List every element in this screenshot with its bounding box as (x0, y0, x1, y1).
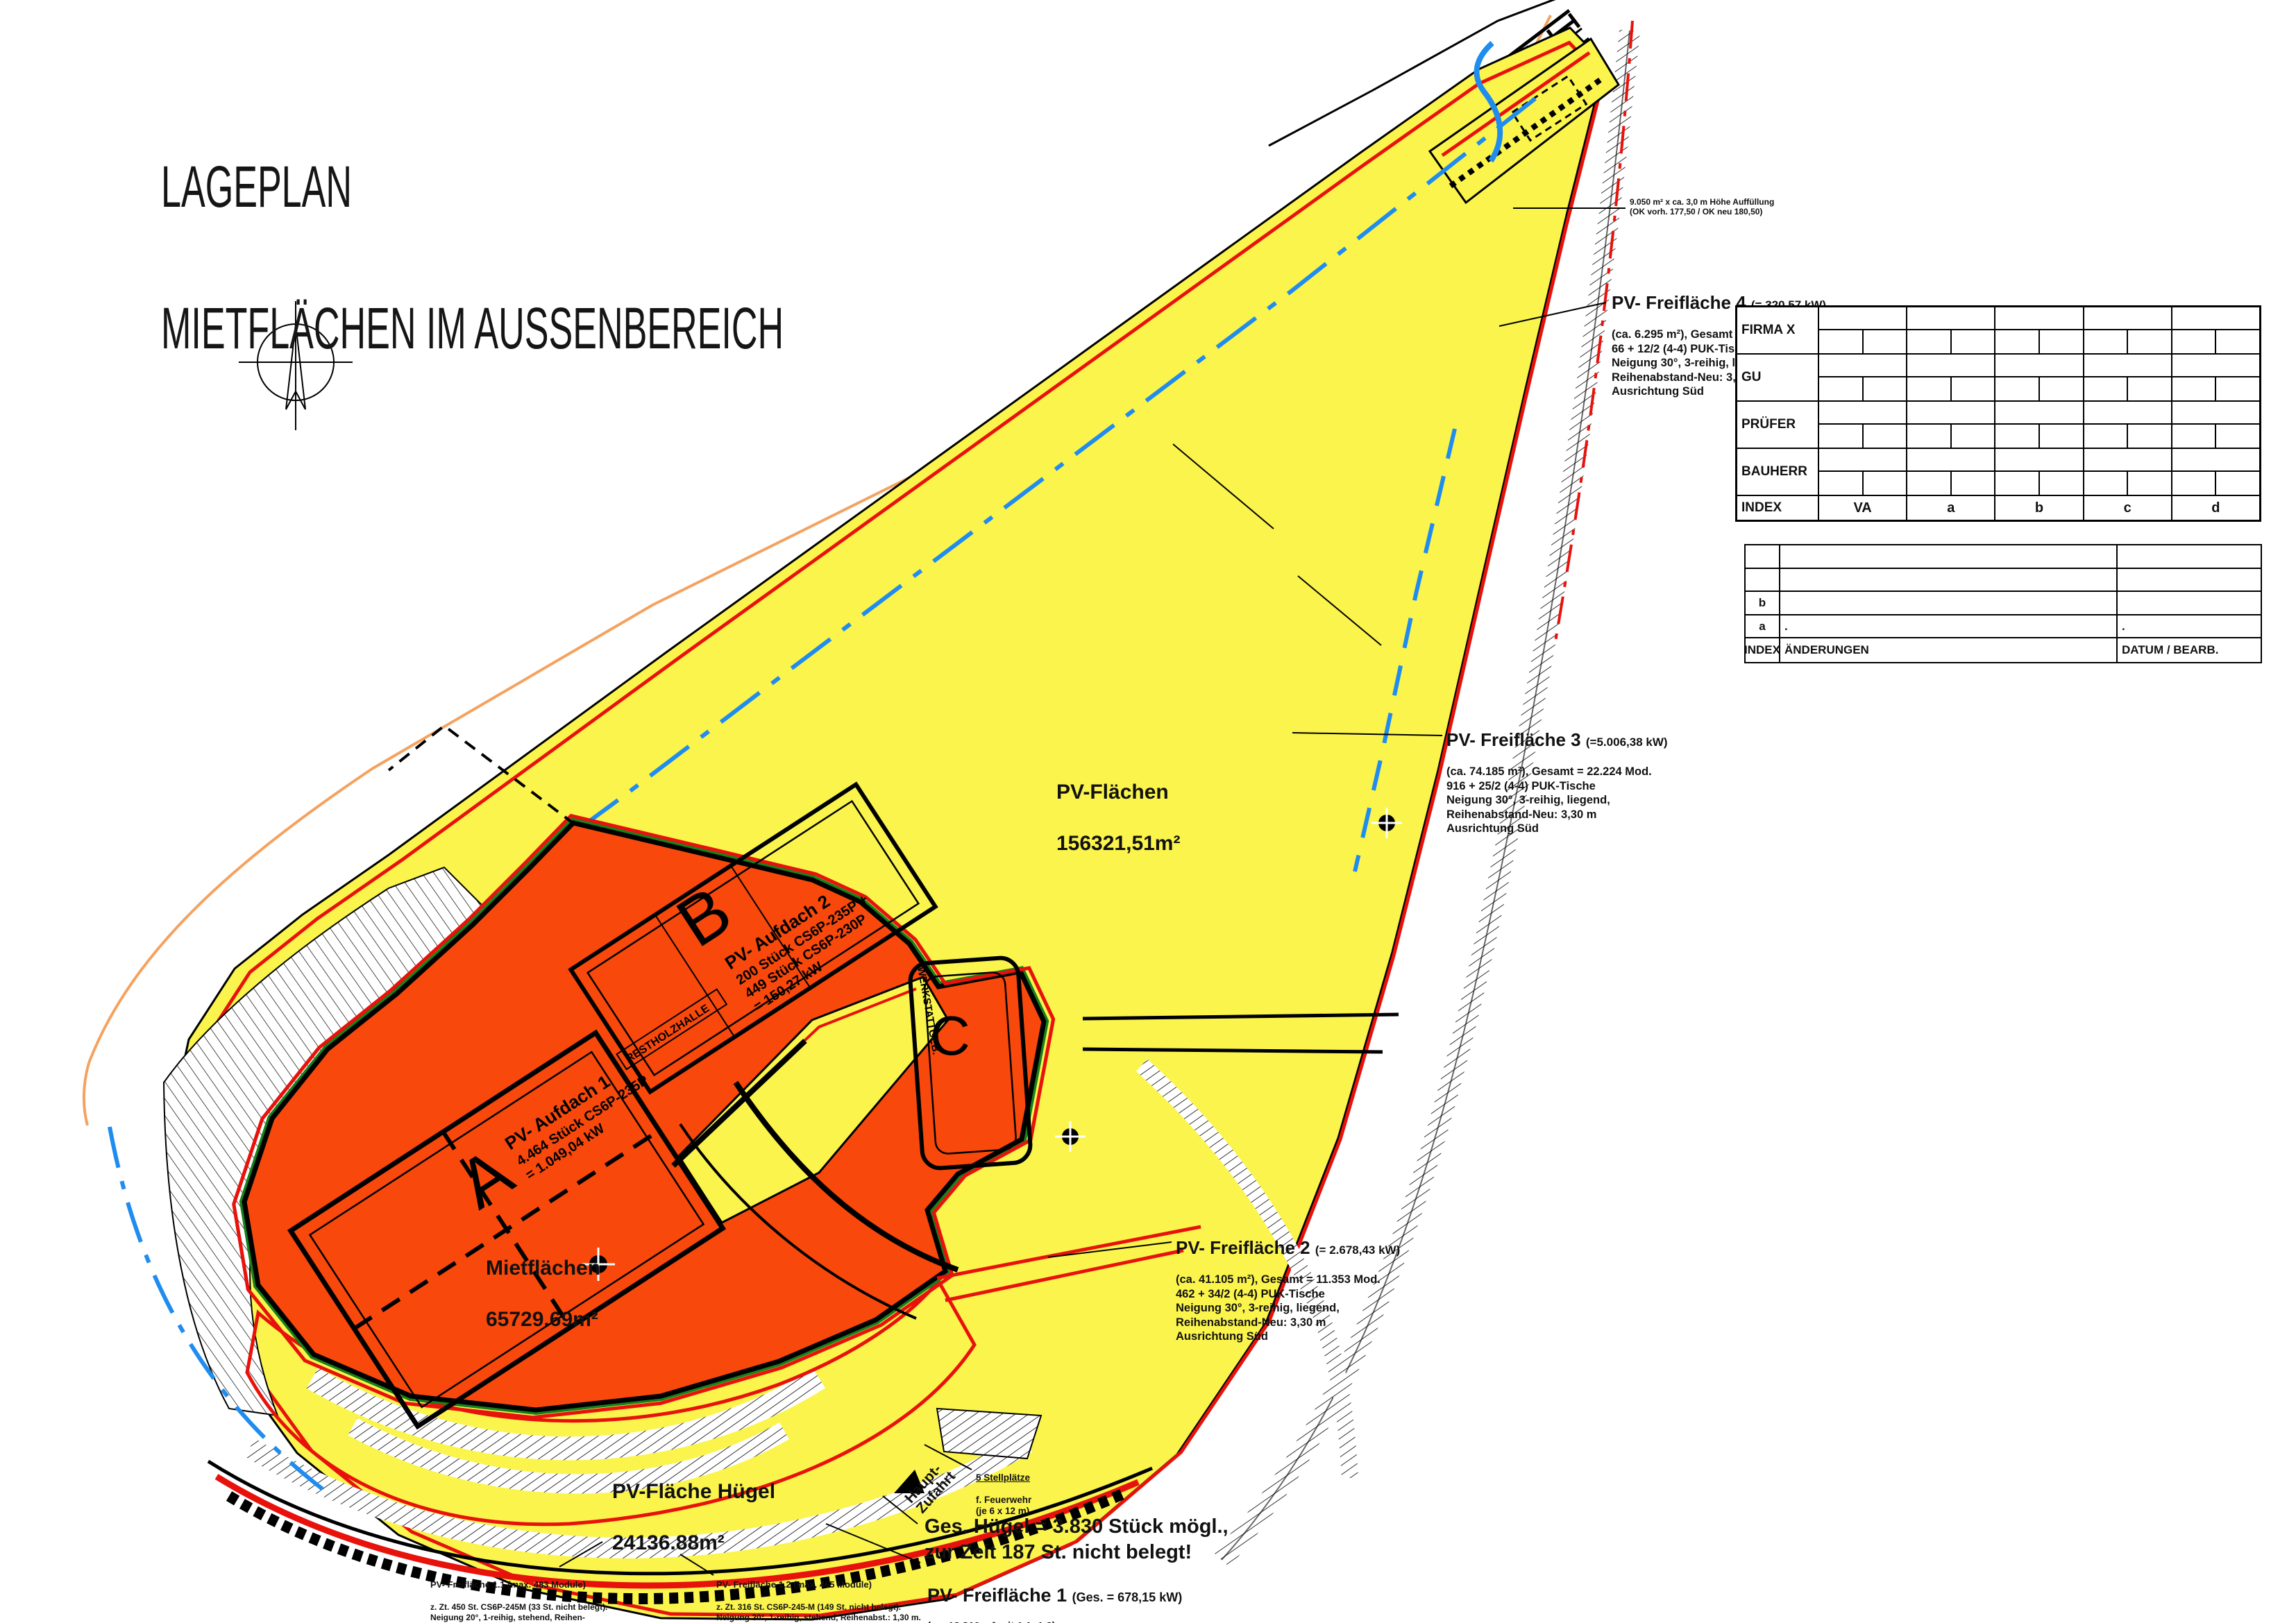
revision-row: INDEX ÄNDERUNGEN DATUM / BEARB. (1746, 638, 2261, 662)
table-cell (2084, 449, 2172, 495)
table-cell (1907, 355, 1995, 400)
stellplaetze-line1: 5 Stellplätze (976, 1472, 1031, 1484)
lageplan-canvas: A PV- Aufdach 1 4.464 Stück CS6P-235P = … (0, 0, 2296, 1623)
pv12-body: z. Zt. 316 St. CS6P-245-M (149 St. nicht… (716, 1602, 966, 1623)
index-col-b: b (1995, 496, 2084, 520)
row-label-bauherr: BAUHERR (1737, 449, 1819, 495)
feuerwehr-parking (937, 1409, 1041, 1459)
index-col-va: VA (1819, 496, 1907, 520)
revision-row (1746, 545, 2261, 569)
revision-row: a . . (1746, 615, 2261, 639)
table-row: PRÜFER (1737, 402, 2259, 449)
table-cell (1819, 307, 1907, 353)
index-col-d: d (2172, 496, 2259, 520)
rev-date-label: DATUM / BEARB. (2118, 638, 2261, 662)
pv3-head: PV- Freifläche 3 (1446, 729, 1581, 750)
table-cell (1907, 402, 1995, 448)
label-pv-huegel: PV-Fläche Hügel 24136.88m² (612, 1453, 775, 1581)
annotation-pv-freiflaeche-1-1: PV- Freifläche 1.1 (max. 483 Module) z. … (430, 1567, 659, 1623)
index-col-a: a (1907, 496, 1995, 520)
table-row: BAUHERR (1737, 449, 2259, 496)
table-cell (1819, 355, 1907, 400)
pv1-kw: (Ges. = 678,15 kW) (1072, 1590, 1183, 1604)
huegel-name: PV-Fläche Hügel (612, 1479, 775, 1504)
pv2-kw: (= 2.678,43 kW) (1315, 1243, 1400, 1257)
label-pv-flaechen: PV-Flächen 156321,51m² (1056, 754, 1180, 882)
table-cell (2084, 307, 2172, 353)
pv2-body: (ca. 41.105 m²), Gesamt = 11.353 Mod. 46… (1176, 1273, 1474, 1344)
label-mietflaechen: Mietflächen 65729.69m² (486, 1230, 600, 1358)
pv12-head: PV- Freifläche 1.2 (max. 465 Module) (716, 1579, 966, 1590)
table-cell (2172, 402, 2259, 448)
mietflaechen-area: 65729.69m² (486, 1307, 600, 1332)
pv3-kw: (=5.006,38 kW) (1586, 736, 1668, 749)
pv11-head: PV- Freifläche 1.1 (max. 483 Module) (430, 1579, 659, 1590)
rev-index: a (1746, 615, 1780, 638)
huegel-area: 24136.88m² (612, 1530, 775, 1556)
annotation-huegel-note: Ges. Hügel = 3.830 Stück mögl., zur Zeit… (925, 1514, 1229, 1565)
rev-change: . (1780, 615, 2118, 638)
title-line1: LAGEPLAN (161, 151, 784, 222)
rev-date (2118, 569, 2261, 591)
annotation-pv-freiflaeche-1: PV- Freifläche 1 (Ges. = 678,15 kW) (ca.… (927, 1572, 1260, 1623)
rev-index-label: INDEX (1746, 638, 1780, 662)
row-label-gu: GU (1737, 355, 1819, 400)
rev-change (1780, 545, 2118, 568)
pv-flaechen-name: PV-Flächen (1056, 779, 1180, 805)
mietflaechen-name: Mietflächen (486, 1255, 600, 1281)
row-label-firma: FIRMA X (1737, 307, 1819, 353)
table-cell (1819, 402, 1907, 448)
row-label-pruefer: PRÜFER (1737, 402, 1819, 448)
stellplaetze-rest: f. Feuerwehr (je 6 x 12 m) (976, 1495, 1031, 1517)
pv3-body: (ca. 74.185 m²), Gesamt = 22.224 Mod. 91… (1446, 765, 1745, 836)
table-cell (1995, 355, 2084, 400)
table-cell (2172, 355, 2259, 400)
table-row: FIRMA X (1737, 307, 2259, 355)
table-cell (1995, 307, 2084, 353)
revision-row (1746, 569, 2261, 593)
rev-index (1746, 569, 1780, 591)
annotation-pv-freiflaeche-1-2: PV- Freifläche 1.2 (max. 465 Module) z. … (716, 1567, 966, 1623)
annotation-pv-freiflaeche-2: PV- Freifläche 2 (= 2.678,43 kW) (ca. 41… (1176, 1225, 1474, 1357)
table-cell (1995, 449, 2084, 495)
pv-flaechen-area: 156321,51m² (1056, 831, 1180, 856)
rev-change-label: ÄNDERUNGEN (1780, 638, 2118, 662)
revision-table: b a . . INDEX ÄNDERUNGEN DATUM / BEARB. (1744, 544, 2262, 663)
index-label: INDEX (1737, 496, 1819, 520)
index-col-c: c (2084, 496, 2172, 520)
rev-change (1780, 592, 2118, 614)
rev-index (1746, 545, 1780, 568)
rev-index: b (1746, 592, 1780, 614)
annotation-pv-freiflaeche-3: PV- Freifläche 3 (=5.006,38 kW) (ca. 74.… (1446, 717, 1745, 849)
title-block-table: FIRMA X GU PRÜFER BAUHERR (1735, 305, 2261, 522)
page-title: LAGEPLAN MIETFLÄCHEN IM AUSSENBEREICH (161, 80, 784, 434)
annotation-auffuellung: 9.050 m² x ca. 3,0 m Höhe Auffüllung (OK… (1630, 197, 1774, 216)
revision-row: b (1746, 592, 2261, 615)
rev-date (2118, 545, 2261, 568)
pv11-body: z. Zt. 450 St. CS6P-245M (33 St. nicht b… (430, 1602, 659, 1623)
table-cell (1907, 449, 1995, 495)
pv1-body: (ca. 13.810 m² mit 1.1+1.2) 2.877 Stück … (927, 1620, 1260, 1623)
rev-date: . (2118, 615, 2261, 638)
table-cell (2084, 402, 2172, 448)
index-row: INDEX VA a b c d (1737, 496, 2259, 520)
rev-change (1780, 569, 2118, 591)
pv4-head: PV- Freifläche 4 (1612, 292, 1746, 313)
pv2-head: PV- Freifläche 2 (1176, 1237, 1310, 1258)
table-cell (2172, 307, 2259, 353)
table-cell (1995, 402, 2084, 448)
table-cell (1907, 307, 1995, 353)
table-cell (2084, 355, 2172, 400)
rev-date (2118, 592, 2261, 614)
title-line2: MIETFLÄCHEN IM AUSSENBEREICH (161, 293, 784, 364)
table-cell (2172, 449, 2259, 495)
table-row: GU (1737, 355, 2259, 402)
annotation-stellplaetze: 5 Stellplätze f. Feuerwehr (je 6 x 12 m) (976, 1461, 1031, 1528)
table-cell (1819, 449, 1907, 495)
